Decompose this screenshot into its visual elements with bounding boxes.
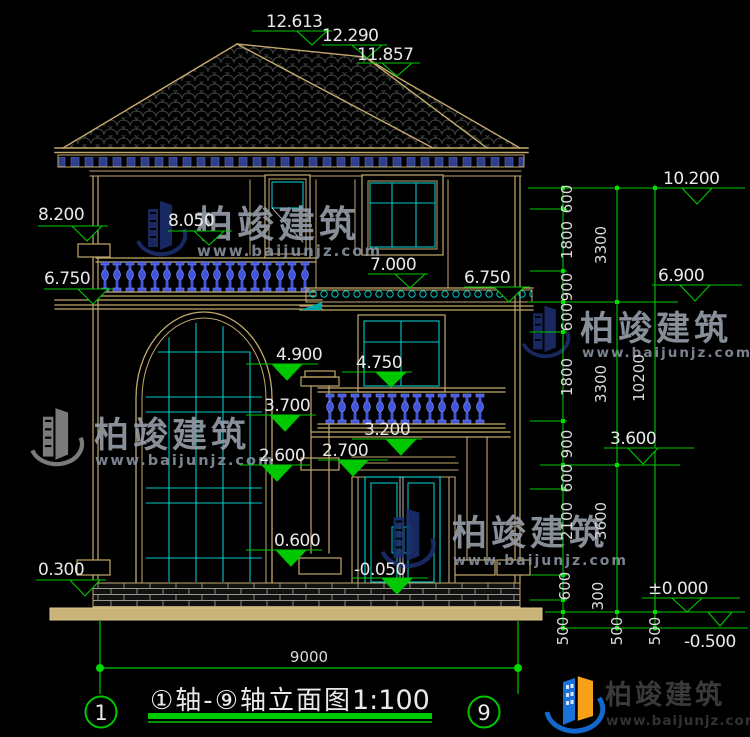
watermark-site: www.baijunjz.com: [582, 345, 750, 361]
marker-label: 4.750: [356, 353, 402, 373]
marker-label: 3.700: [264, 396, 310, 416]
dim-label: 3300: [592, 226, 610, 264]
dim-label: 2100: [558, 502, 576, 540]
marker-label: 6.750: [44, 269, 90, 289]
dim-label: 600: [558, 185, 576, 214]
marker-label: 8.050: [168, 211, 214, 231]
marker-label: 3.200: [364, 420, 410, 440]
pilaster-cap: [78, 244, 110, 257]
dim-label: 500: [646, 617, 664, 646]
watermark-site: www.baijunjz.com: [453, 553, 628, 569]
watermark-brand: 柏竣建筑: [94, 415, 250, 456]
dim-label: 3600: [592, 502, 610, 540]
brand-name: 柏竣建筑: [605, 679, 725, 711]
watermark-brand: 柏竣建筑: [196, 203, 360, 246]
watermark-brand: 柏竣建筑: [452, 513, 608, 554]
watermark-brand: 柏竣建筑: [580, 309, 732, 349]
dim-label: 500: [554, 617, 572, 646]
marker-label: 10.200: [663, 169, 719, 189]
marker-label: 12.613: [266, 12, 322, 32]
marker-label: 3.600: [610, 429, 656, 449]
dim-label: 600: [556, 572, 574, 601]
marker-label: 2.700: [322, 441, 368, 461]
dim-label: 900: [558, 273, 576, 302]
marker-label: 4.900: [276, 345, 322, 365]
caption: ①轴-⑨轴立面图 1:100: [148, 685, 432, 722]
eave-dentil-band: [58, 155, 524, 167]
marker-label: 0.300: [38, 560, 84, 580]
marker-label: 12.290: [322, 26, 378, 46]
dim-label: 10200: [630, 354, 648, 402]
cad-elevation-canvas: 柏竣建筑 www.baijunjz.com 柏竣建筑 www.baijunjz.…: [0, 0, 750, 737]
brand-site: www.baijunjz.com: [606, 713, 750, 729]
dim-label: 500: [608, 617, 626, 646]
dim-label: 1800: [558, 221, 576, 259]
marker-label: 6.900: [658, 266, 704, 286]
marker-label: 0.600: [274, 531, 320, 551]
watermark-site: www.baijunjz.com: [95, 453, 275, 469]
marker-label: -0.500: [684, 632, 736, 652]
marker-label: 8.200: [38, 205, 84, 225]
title-underline-thick: [148, 713, 432, 719]
axis-number-end: 9: [477, 701, 490, 725]
axis-number-start: 1: [94, 701, 107, 725]
dim-label: 600: [558, 464, 576, 493]
dim-label: 3300: [592, 365, 610, 403]
dim-label: 1800: [558, 358, 576, 396]
marker-label: ±0.000: [648, 579, 708, 599]
drawing-title: ①轴-⑨轴立面图: [150, 686, 352, 716]
drawing-scale: 1:100: [352, 685, 430, 716]
dim-label: 900: [558, 430, 576, 459]
ground-line: [50, 608, 542, 620]
marker-label: 7.000: [370, 255, 416, 275]
dim-label-width: 9000: [290, 648, 328, 666]
dim-label: 300: [589, 582, 607, 611]
marker-label: -0.050: [354, 560, 406, 580]
elevation-drawing: 柏竣建筑 www.baijunjz.com 柏竣建筑 www.baijunjz.…: [0, 0, 750, 737]
marker-label: 6.750: [464, 268, 510, 288]
dim-label: 600: [558, 303, 576, 332]
watermark-site: www.baijunjz.com: [197, 242, 382, 260]
marker-label: 11.857: [357, 45, 413, 65]
marker-label: 2.600: [259, 446, 305, 466]
